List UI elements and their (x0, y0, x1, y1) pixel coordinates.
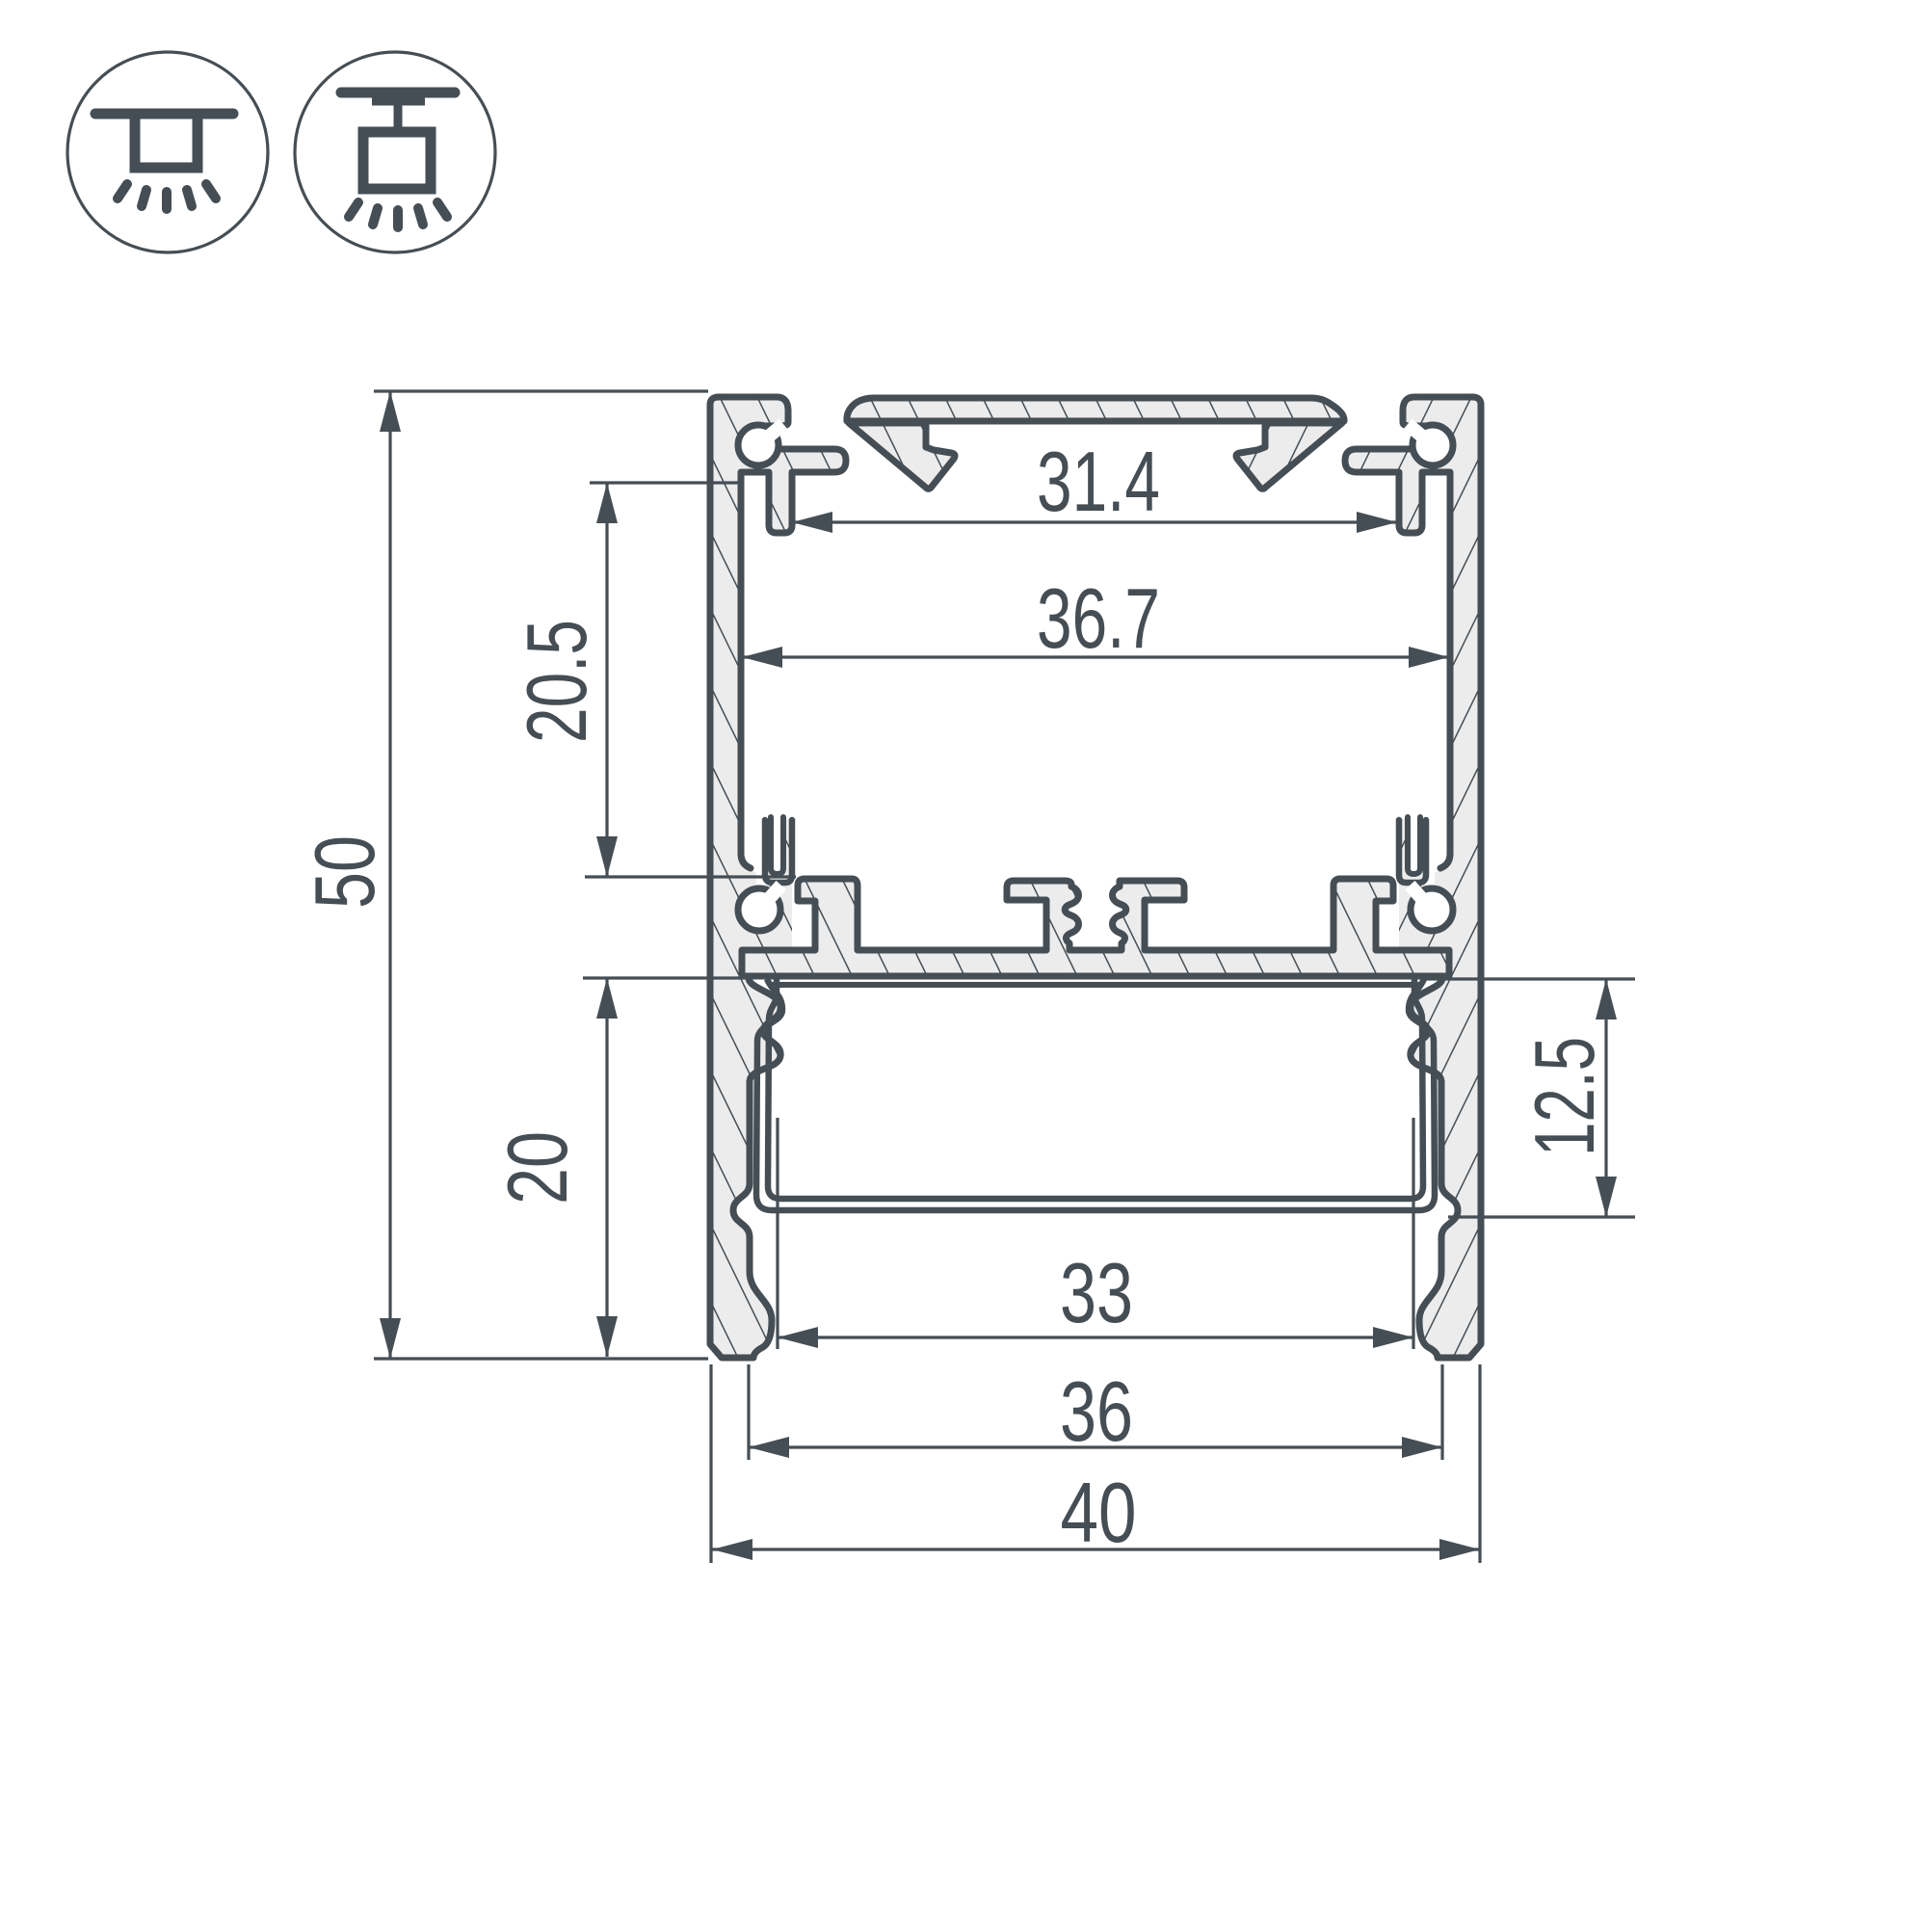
svg-text:50: 50 (297, 835, 392, 909)
svg-text:20: 20 (489, 1131, 585, 1204)
svg-text:36: 36 (1060, 1363, 1133, 1459)
svg-text:31.4: 31.4 (1037, 434, 1160, 529)
svg-text:36.7: 36.7 (1037, 570, 1160, 666)
svg-text:33: 33 (1060, 1245, 1133, 1340)
svg-text:40: 40 (1061, 1465, 1137, 1560)
svg-text:12.5: 12.5 (1517, 1037, 1612, 1156)
svg-text:20.5: 20.5 (509, 620, 604, 743)
